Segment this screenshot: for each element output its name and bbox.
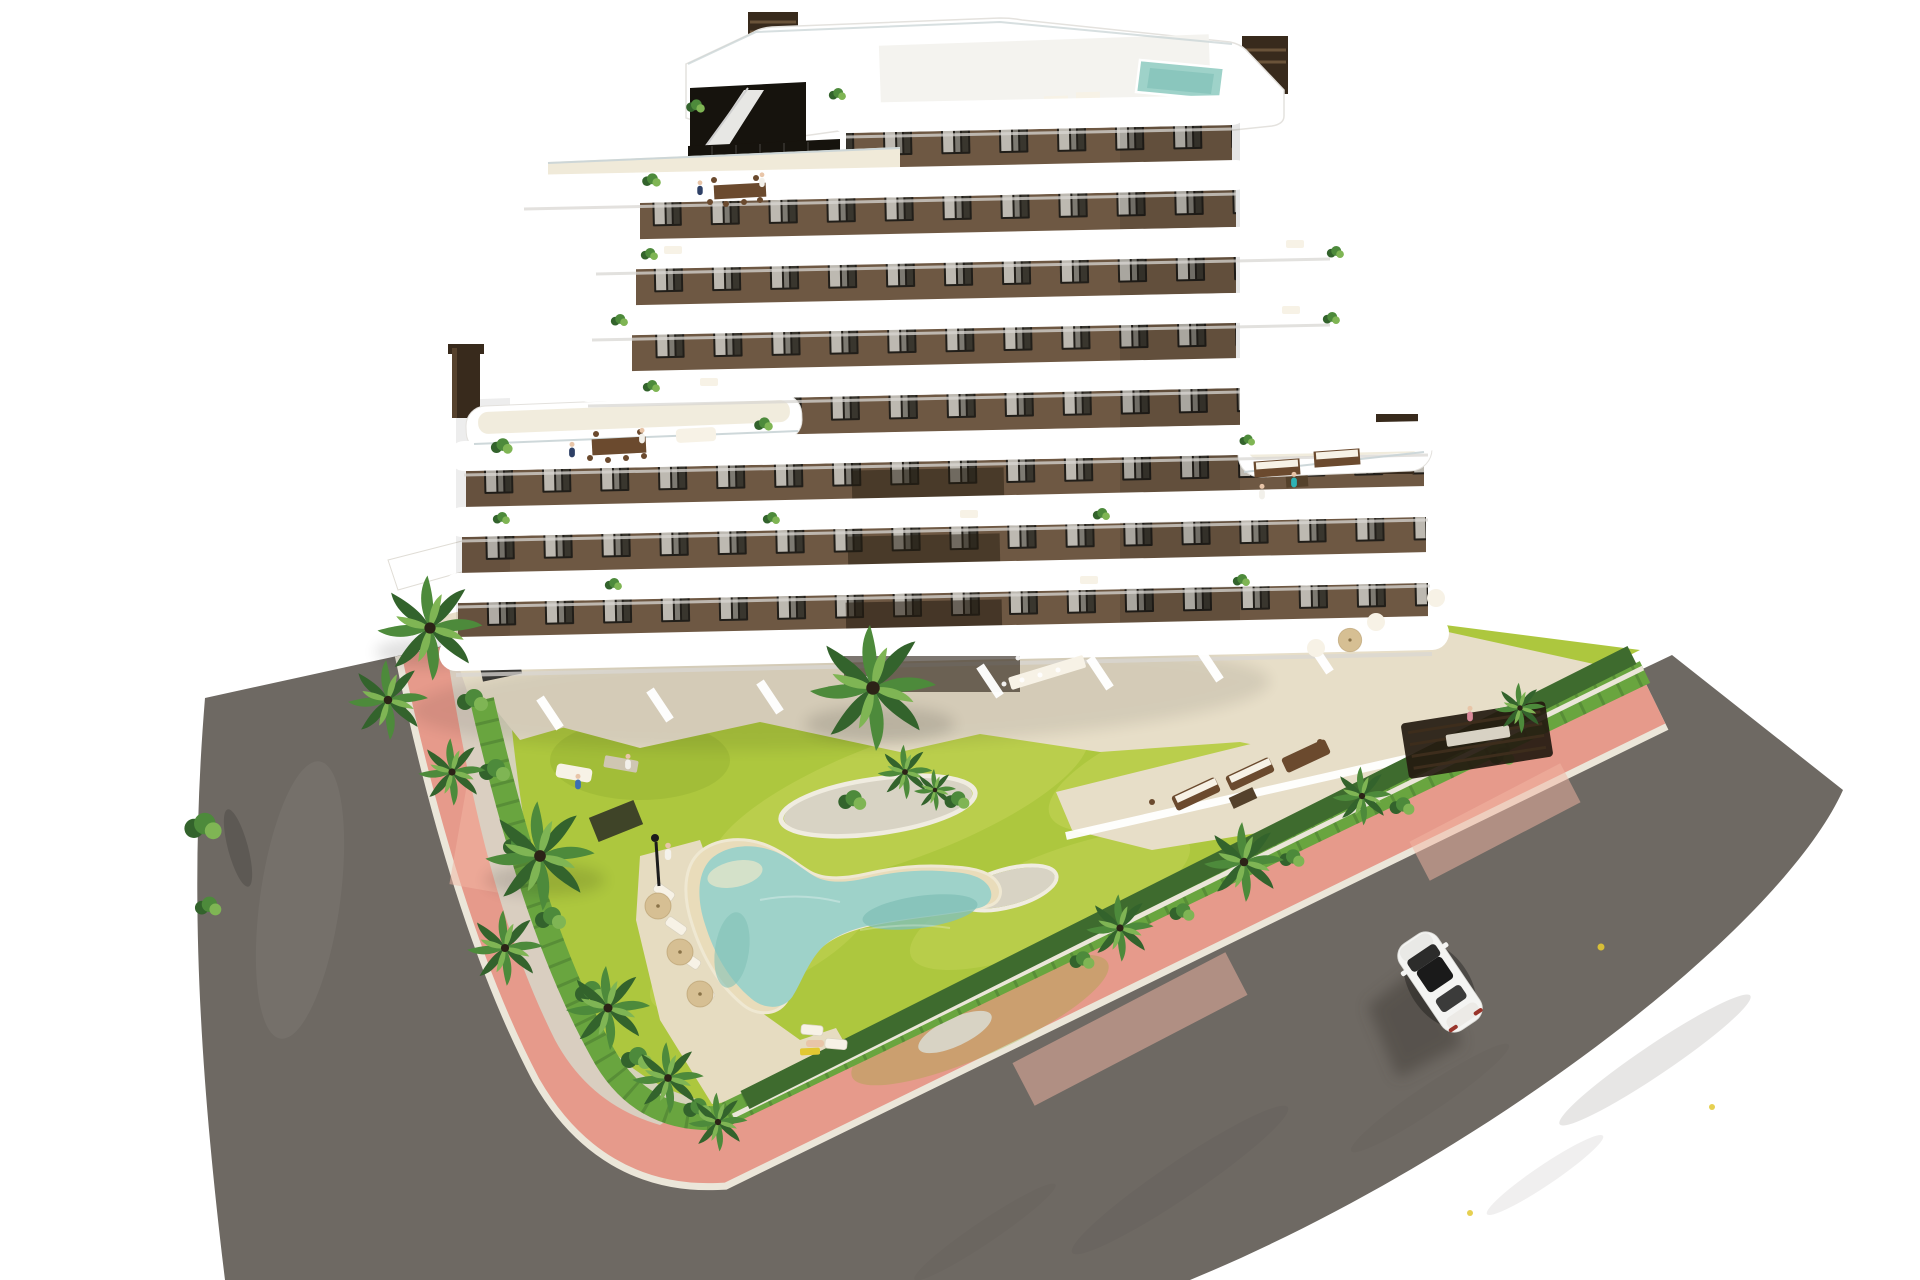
- chimney-highlight: [452, 348, 457, 418]
- dining-table: [592, 437, 647, 456]
- parasol: [667, 939, 693, 965]
- bistro-table: [1307, 639, 1325, 657]
- person: [759, 172, 764, 187]
- beach-towel: [800, 1047, 820, 1055]
- sun-lounger: [801, 1024, 824, 1036]
- balcony-furniture: [664, 246, 682, 254]
- balcony-band: [462, 501, 1428, 522]
- render-canvas: [0, 0, 1920, 1280]
- bistro-table: [1367, 613, 1385, 631]
- person-sunbathing: [806, 1040, 824, 1047]
- parasol: [645, 893, 671, 919]
- balcony-furniture: [700, 378, 718, 386]
- person: [639, 428, 645, 444]
- dining-table: [714, 183, 767, 200]
- balcony-band: [588, 373, 1240, 387]
- person: [1259, 484, 1265, 500]
- person: [665, 843, 671, 860]
- person: [697, 180, 702, 195]
- aerial-render: [0, 0, 1920, 1280]
- balcony-furniture: [1282, 306, 1300, 314]
- balcony-band: [596, 240, 1330, 255]
- balcony-band: [524, 175, 1236, 190]
- person: [575, 774, 581, 790]
- bistro-table: [1427, 589, 1445, 607]
- balcony-band: [592, 306, 1330, 321]
- balcony-band: [846, 110, 1232, 118]
- sun-lounger: [825, 1038, 848, 1050]
- ground-slab-band: [456, 633, 1432, 654]
- balcony-furniture: [1080, 576, 1098, 584]
- parasol: [1338, 628, 1361, 651]
- balcony-furniture: [960, 510, 978, 518]
- pool-lamp-head: [651, 834, 659, 842]
- person: [625, 754, 631, 770]
- person: [569, 442, 575, 458]
- parasol: [687, 981, 713, 1007]
- person: [1467, 706, 1473, 722]
- balcony-furniture: [1286, 240, 1304, 248]
- coffee-table: [1286, 475, 1309, 488]
- balcony-band: [458, 567, 1430, 588]
- outdoor-sofa: [676, 427, 717, 443]
- person: [1291, 472, 1297, 488]
